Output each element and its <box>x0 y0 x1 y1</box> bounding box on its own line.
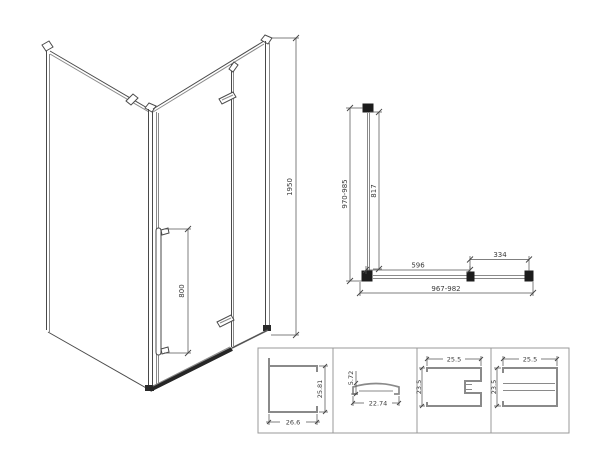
detail3-width-label: 25.5 <box>447 356 461 364</box>
side-panel-top-cap <box>42 41 53 51</box>
profile-details-drawing: 26.6 25.81 5.72 22.74 <box>255 345 575 437</box>
plan-end-profile <box>525 271 533 281</box>
plan-depth-dimension: 970-985 <box>341 105 363 284</box>
detail1-width-label: 26.6 <box>286 419 300 427</box>
side-panel-clamp <box>126 94 138 105</box>
plan-side-glass-dimension: 817 <box>370 109 382 272</box>
plan-depth-label: 970-985 <box>341 179 349 208</box>
detail2-height-label: 5.72 <box>347 371 355 385</box>
door-handle <box>156 228 169 355</box>
plan-width-dimension: 967-982 <box>357 282 536 296</box>
detail1-height-label: 25.81 <box>316 380 324 399</box>
detail2-width-label: 22.74 <box>369 400 388 408</box>
detail4-height-label: 23.5 <box>490 380 498 394</box>
plan-door-glass-dimension: 596 <box>363 262 473 275</box>
iso-height-dimension: 1950 <box>271 35 299 338</box>
top-pivot-clamp <box>229 62 238 72</box>
detail-clamp-profile: 25.5 23.5 <box>415 356 483 409</box>
wall-profile-cap <box>261 35 272 44</box>
detail-seal-profile: 25.5 23.5 <box>490 356 559 409</box>
plan-width-label: 967-982 <box>431 285 460 293</box>
plan-fixed-glass-label: 334 <box>493 251 507 259</box>
plan-fixed-glass-dimension: 334 <box>467 251 532 271</box>
technical-drawing-canvas: 1950 800 <box>0 0 600 464</box>
plan-wall-profile <box>363 104 373 112</box>
detail-threshold-profile: 5.72 22.74 <box>347 371 401 408</box>
plan-side-glass-label: 817 <box>370 184 378 197</box>
side-panel <box>42 41 149 389</box>
plan-view-drawing: 970-985 817 596 334 <box>320 55 600 305</box>
bottom-rail <box>150 349 232 390</box>
detail3-height-label: 23.5 <box>415 380 423 394</box>
corner-post <box>145 103 156 391</box>
handle-dimension: 800 <box>164 226 191 356</box>
iso-height-label: 1950 <box>286 178 294 196</box>
door-hinges <box>217 62 238 327</box>
handle-length-label: 800 <box>178 284 186 297</box>
front-panel <box>150 35 272 390</box>
plan-glass-panels <box>362 104 533 281</box>
detail4-width-label: 25.5 <box>523 356 537 364</box>
plan-door-glass-label: 596 <box>411 262 425 270</box>
plan-hinge-block <box>467 272 474 281</box>
detail-wall-profile: 26.6 25.81 <box>266 358 328 427</box>
